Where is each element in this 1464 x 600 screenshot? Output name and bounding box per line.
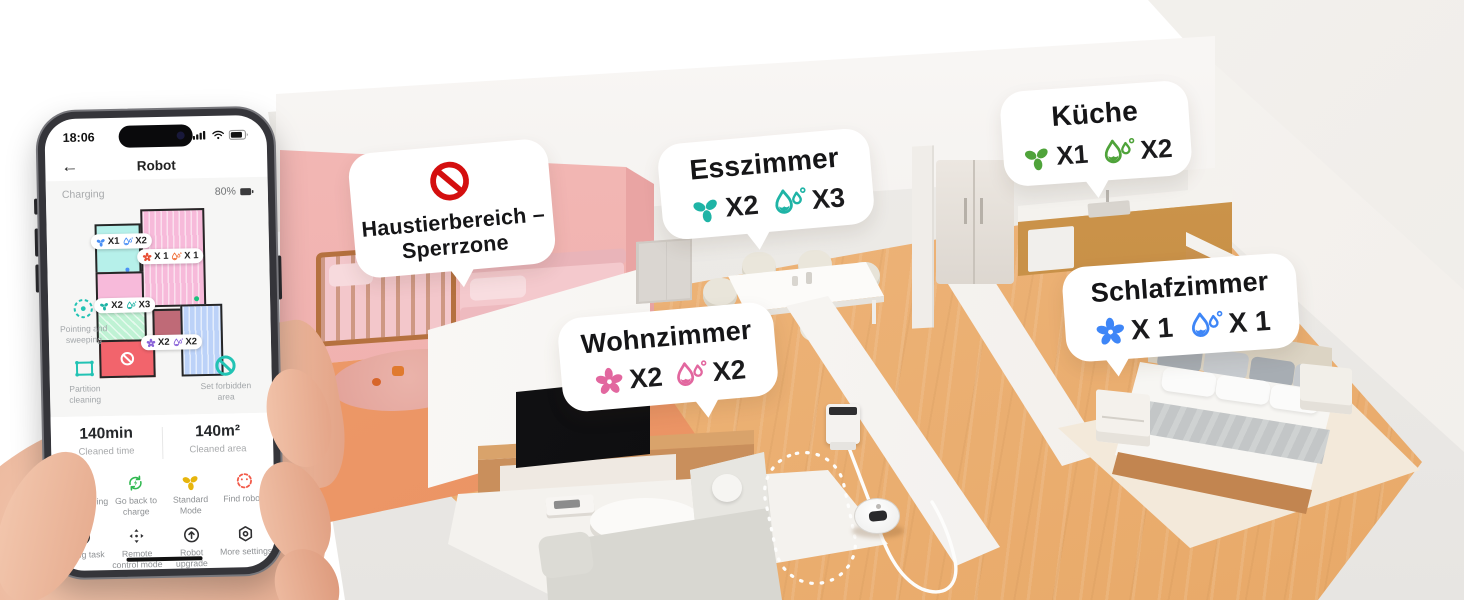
dashed-cleaning-path <box>757 445 863 591</box>
mop-count: X3 <box>811 182 847 216</box>
room-bubble-haustierbereich: Haustierbereich – Sperrzone <box>347 138 557 280</box>
battery-icon <box>229 129 249 140</box>
page-title: Robot <box>45 156 267 176</box>
fan-count: X2 <box>111 300 123 311</box>
fan-count: X2 <box>158 337 170 348</box>
stat-cleaned-area: 140m² Cleaned area <box>162 413 274 471</box>
water-drop-icon <box>172 337 184 347</box>
mop-count: X2 <box>135 235 147 246</box>
room-title: Haustierbereich – Sperrzone <box>360 202 548 267</box>
map-room-label: X 1 X 1 <box>137 248 204 264</box>
action-partition-cleaning[interactable]: Partition cleaning <box>53 356 116 406</box>
bubble-tail <box>745 229 774 264</box>
flower-fan-icon <box>1093 315 1127 349</box>
action-label: Partition cleaning <box>54 383 116 406</box>
fan-icon <box>1021 142 1052 173</box>
no-entry-icon <box>119 351 135 367</box>
fan-count: X2 <box>724 189 760 223</box>
feature-label: More settings <box>219 545 274 557</box>
flower-fan-icon <box>592 365 626 399</box>
mop-count: X3 <box>139 299 151 310</box>
feature-standard-mode[interactable]: Standard Mode <box>163 472 218 517</box>
feature-robot-upgrade[interactable]: Robot upgrade <box>164 525 219 570</box>
feature-go-back-to-charge[interactable]: Go back to charge <box>108 473 163 518</box>
partition-frame-icon <box>72 356 96 380</box>
fan-count: X1 <box>108 236 120 247</box>
charger-position-dot <box>125 268 129 272</box>
dock-slot <box>829 407 857 415</box>
action-label: Pointing and sweeping <box>53 323 115 346</box>
robot-position-dot <box>194 296 199 301</box>
map-room-label: X1 X2 <box>91 233 152 249</box>
stat-label: Cleaned area <box>163 443 274 456</box>
robot-button <box>876 504 881 509</box>
mop-count: X2 <box>711 354 747 388</box>
feature-label: Go back to charge <box>109 495 164 518</box>
charging-dock <box>826 404 860 444</box>
mop-count: X2 <box>1139 133 1173 166</box>
mop-count: X 1 <box>184 250 198 261</box>
fan-icon <box>142 252 152 262</box>
bubble-tail <box>1105 356 1133 391</box>
fan-icon <box>96 237 106 247</box>
robot-sensor <box>869 510 888 522</box>
charging-status: Charging <box>62 188 105 201</box>
battery-percent: 80% <box>215 185 236 197</box>
feature-remote-control[interactable]: Remote control mode <box>109 526 164 571</box>
fan-icon <box>689 193 722 226</box>
dynamic-island <box>118 124 192 148</box>
room-bubble-schlafzimmer: Schlafzimmer X 1 X 1 <box>1061 252 1301 363</box>
water-drop-icon <box>1098 136 1137 169</box>
map-room-label: X2 X3 <box>94 297 155 313</box>
action-set-forbidden-area[interactable]: Set forbidden area <box>191 353 260 404</box>
marketing-scene: Haustierbereich – Sperrzone Esszimmer X2… <box>0 0 1464 600</box>
water-drop-icon <box>170 251 182 261</box>
action-label: Set forbidden area <box>192 380 260 404</box>
gear-icon <box>236 524 255 543</box>
bubble-tail <box>693 397 722 432</box>
no-entry-icon <box>356 150 543 212</box>
water-drop-icon <box>121 236 133 246</box>
room-bubble-esszimmer: Esszimmer X2 X3 <box>656 127 876 241</box>
forbidden-area-icon <box>213 353 237 377</box>
water-drop-icon <box>670 358 709 392</box>
charging-row: Charging 80% <box>62 185 254 201</box>
room-title: Schlafzimmer <box>1070 264 1290 310</box>
dock-base <box>830 442 856 450</box>
target-icon <box>71 296 95 320</box>
fan-count: X 1 <box>154 251 168 262</box>
fan-icon <box>99 301 109 311</box>
cellular-signal-icon <box>193 130 208 140</box>
find-robot-icon <box>235 471 254 490</box>
mop-count: X2 <box>185 336 197 347</box>
fan-count: X1 <box>1055 139 1089 172</box>
mop-count: X 1 <box>1228 305 1272 340</box>
map-section: Charging 80% <box>46 177 273 418</box>
room-bubble-wohnzimmer: Wohnzimmer X2 X2 <box>556 301 779 414</box>
dpad-icon <box>127 526 146 545</box>
upgrade-icon <box>182 525 201 544</box>
stat-value: 140m² <box>162 422 273 442</box>
fan-mode-icon <box>180 472 199 491</box>
water-drop-icon <box>1185 308 1225 343</box>
camera-lens <box>177 131 185 139</box>
battery-small-icon <box>240 187 254 196</box>
bubble-tail <box>449 267 478 302</box>
feature-label: Standard Mode <box>163 494 218 517</box>
status-time: 18:06 <box>63 130 95 145</box>
bubble-tail <box>1084 177 1112 212</box>
fan-icon <box>146 338 156 348</box>
water-drop-icon <box>125 300 137 310</box>
map-room-label: X2 X2 <box>141 334 202 350</box>
robot-vacuum <box>854 498 900 534</box>
recharge-icon <box>126 473 145 492</box>
stat-value: 140min <box>51 424 162 444</box>
wifi-icon <box>212 130 225 140</box>
room-bubble-kueche: Küche X1 X2 <box>999 80 1193 188</box>
water-drop-icon <box>768 185 808 220</box>
fan-count: X2 <box>628 362 664 396</box>
room-title: Küche <box>1008 92 1182 136</box>
fan-count: X 1 <box>1130 312 1174 347</box>
